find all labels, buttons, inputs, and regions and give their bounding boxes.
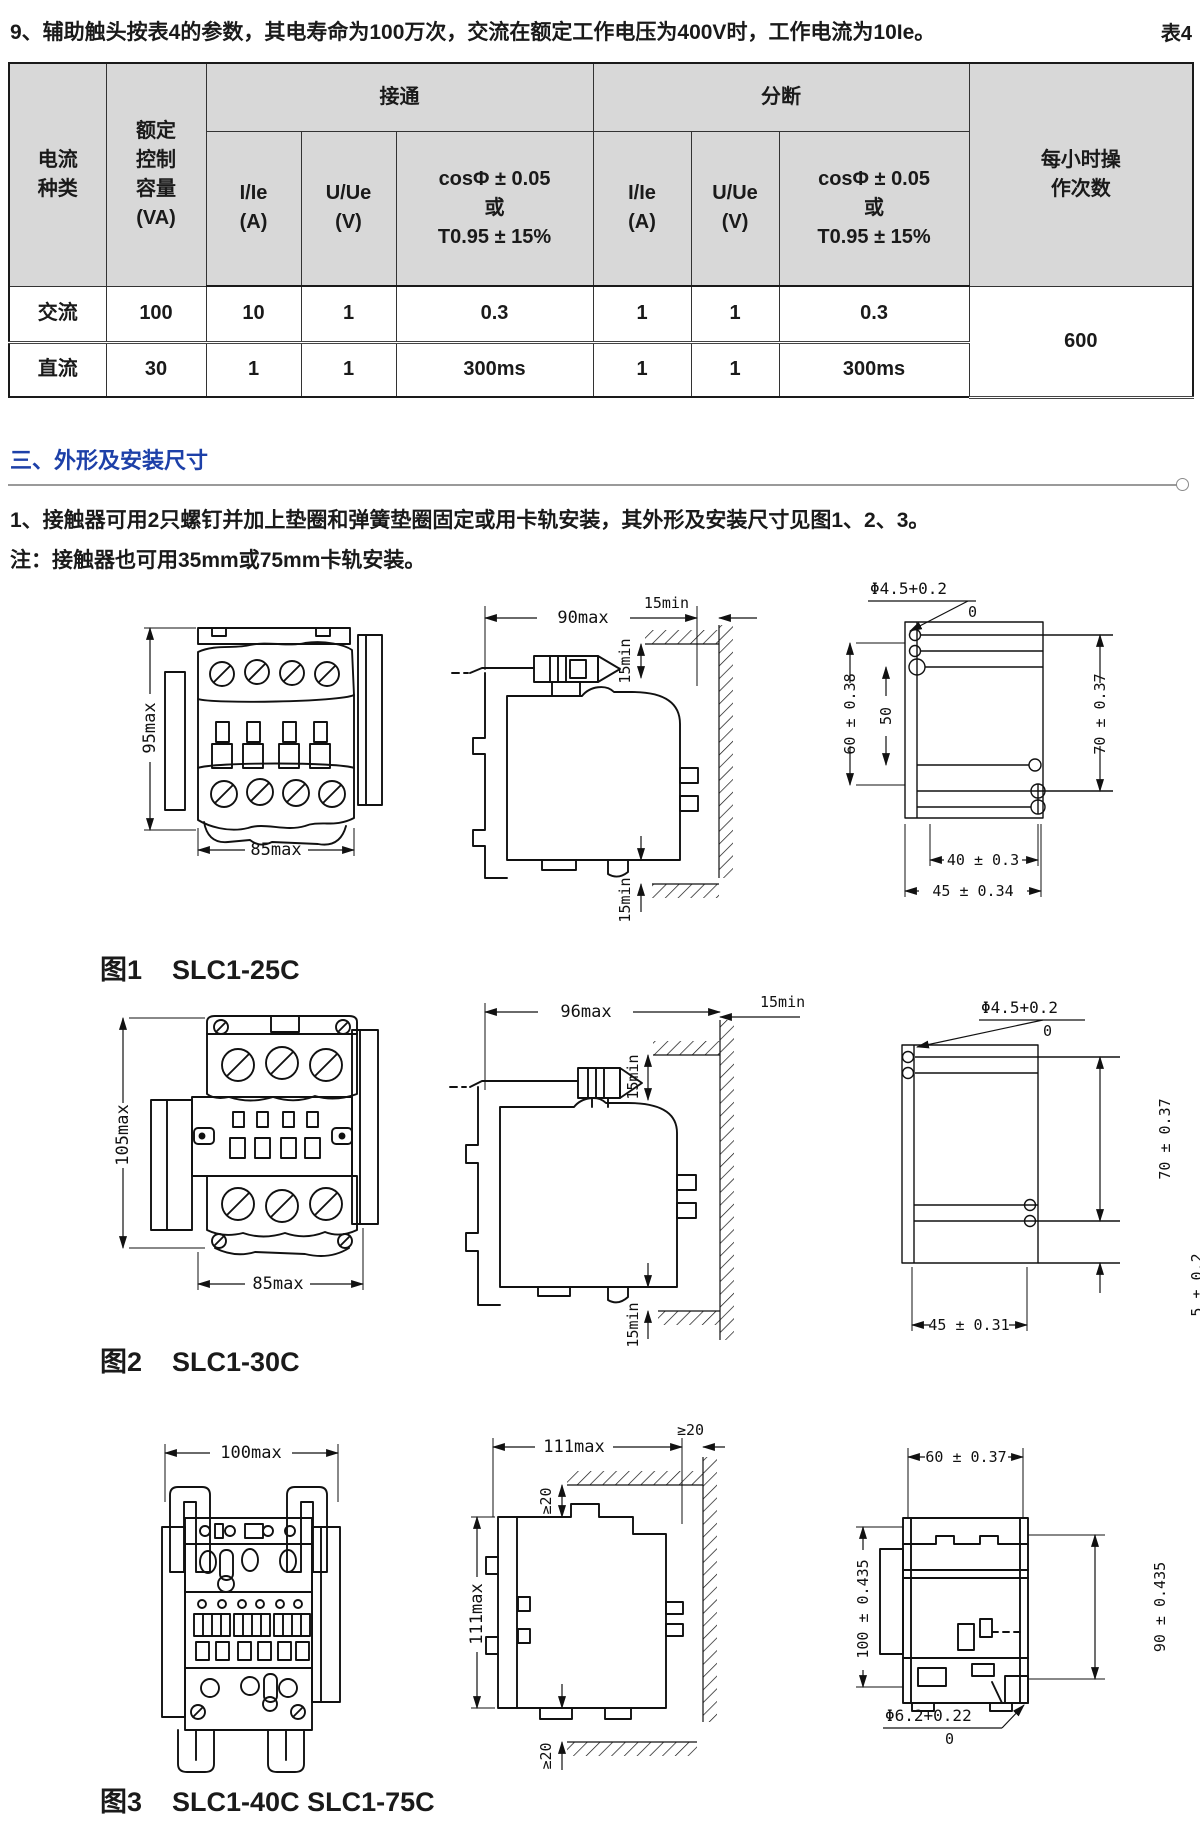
fig1-mount-v1-label: 60 ± 0.38 (841, 673, 859, 754)
group-header-break: 分断 (593, 63, 969, 131)
fig3-top-gap-dim: ≥20 (537, 1485, 562, 1517)
fig2-side-view-drawing: 96max 15min 15min (408, 995, 838, 1365)
fig2-hole-tol-label: 0 (1043, 1022, 1052, 1040)
contactor3-rear-outline (880, 1518, 1028, 1711)
table-row-ac: 交流 100 10 1 0.3 1 1 0.3 600 (9, 286, 1193, 342)
fig1-mount-v2-dim: 50 (877, 667, 895, 765)
cell-ac-close-i: 10 (206, 286, 301, 342)
fig3-front-view-drawing: 100max (130, 1432, 420, 1782)
cell-ac-break-i: 1 (593, 286, 691, 342)
table4-label: 表4 (1161, 17, 1192, 46)
fig2-depth-label: 96max (560, 1002, 611, 1022)
fig3-bottom-gap-label: ≥20 (537, 1742, 555, 1769)
contactor3-side-outline (486, 1504, 683, 1719)
fig1-mount-v1-dim: 60 ± 0.38 (841, 643, 905, 785)
cell-ac-break-u: 1 (691, 286, 779, 342)
fig3-side-height-label: 111max (467, 1583, 487, 1644)
cell-ac-close-u: 1 (301, 286, 396, 342)
fig3-bottom-gap-dim: ≥20 (537, 1684, 562, 1770)
fig3-mounting-view-drawing: 60 ± 0.37 100 ± 0.435 90 ± 0.435 (740, 1432, 1200, 1767)
col-header-close-i: I/Ie (A) (206, 131, 301, 286)
cell-ac-close-cos: 0.3 (396, 286, 593, 342)
fig1-depth-label: 90max (557, 608, 608, 628)
install-notes: 1、接触器可用2只螺钉并加上垫圈和弹簧垫圈固定或用卡轨安装，其外形及安装尺寸见图… (10, 501, 1192, 581)
section-title: 三、外形及安装尺寸 (10, 443, 208, 475)
fig2-mount-v1-label: 70 ± 0.37 (1156, 1098, 1174, 1179)
fig2-mount-v1-dim: 70 ± 0.37 (1100, 1057, 1174, 1221)
fig1-bottom-gap-label: 15min (616, 877, 634, 922)
fig2-front-view-drawing: 105max (95, 1008, 425, 1298)
mounting-plate-2 (902, 1045, 1120, 1263)
fig1-depth-dim: 90max (485, 606, 697, 686)
fig3-hole-label: Φ6.2+0.22 (885, 1706, 972, 1725)
fig1-mid-gap-dim: 15min (616, 638, 641, 683)
fig2-top-gap-label: 15min (760, 995, 805, 1011)
fig3-number: 图3 (100, 1787, 142, 1817)
fig1-number: 图1 (100, 955, 142, 985)
fig3-mount-top-label: 60 ± 0.37 (925, 1448, 1006, 1466)
divider-end-circle (1176, 478, 1189, 491)
fig3-depth-label: 111max (543, 1437, 604, 1457)
fig3-caption: 图3SLC1-40C SLC1-75C (100, 1780, 435, 1819)
cell-dc-capacity: 30 (106, 342, 206, 397)
fig2-floor (658, 1311, 720, 1325)
fig3-mount-right-label: 90 ± 0.435 (1151, 1562, 1169, 1652)
fig1-height-label: 95max (140, 702, 160, 753)
fig1-side-view-drawing: 90max 15min 15min (412, 578, 762, 923)
fig2-caption: 图2SLC1-30C (100, 1340, 300, 1379)
fig1-bottom-gap-dim: 15min (616, 836, 641, 923)
fig3-side-view-drawing: 111max ≥20 ≥20 111max (395, 1412, 730, 1792)
fig1-hole-label: Φ4.5+0.2 (870, 579, 947, 598)
fig1-mount-v2-label: 50 (877, 707, 895, 725)
cell-ac-break-cos: 0.3 (779, 286, 969, 342)
fig2-model: SLC1-30C (172, 1347, 300, 1377)
fig1-front-height-dim: 95max (140, 628, 196, 830)
fig2-number: 图2 (100, 1347, 142, 1377)
col-header-close-cos: cosΦ ± 0.05 或 T0.95 ± 15% (396, 131, 593, 286)
fig1-hole-callout: Φ4.5+0.2 0 (868, 579, 977, 631)
cell-ac-type: 交流 (9, 286, 106, 342)
fig3-side-gap-label: ≥20 (677, 1421, 704, 1439)
cell-dc-break-cos: 300ms (779, 342, 969, 397)
fig2-mount-h1-dim: 45 ± 0.31 (912, 1267, 1027, 1334)
fig1-mid-gap-label: 15min (616, 638, 634, 683)
group-header-close: 接通 (206, 63, 593, 131)
contactor2-side-outline (450, 1068, 696, 1305)
fig3-mount-left-label: 100 ± 0.435 (854, 1559, 872, 1658)
col-header-break-i: I/Ie (A) (593, 131, 691, 286)
install-note-1: 1、接触器可用2只螺钉并加上垫圈和弹簧垫圈固定或用卡轨安装，其外形及安装尺寸见图… (10, 501, 1192, 541)
fig3-width-label: 100max (220, 1443, 281, 1463)
col-header-ops-per-hour: 每小时操 作次数 (969, 63, 1193, 286)
fig2-hole-callout: Φ4.5+0.2 0 (917, 998, 1085, 1047)
document-page: 9、辅助触头按表4的参数，其电寿命为100万次，交流在额定工作电压为400V时，… (0, 0, 1200, 1833)
fig3-wall (567, 1457, 717, 1722)
fig1-model: SLC1-25C (172, 955, 300, 985)
cell-dc-close-cos: 300ms (396, 342, 593, 397)
contactor2-front-outline (151, 1016, 378, 1256)
install-note-2: 注：接触器也可用35mm或75mm卡轨安装。 (10, 541, 1192, 581)
fig3-model: SLC1-40C SLC1-75C (172, 1787, 435, 1817)
cell-dc-break-u: 1 (691, 342, 779, 397)
fig2-height-label: 105max (113, 1104, 133, 1165)
section-divider (8, 484, 1178, 486)
fig3-mount-top-dim: 60 ± 0.37 (908, 1448, 1023, 1518)
col-header-close-u: U/Ue (V) (301, 131, 396, 286)
col-header-capacity: 额定 控制 容量 (VA) (106, 63, 206, 286)
col-header-break-cos: cosΦ ± 0.05 或 T0.95 ± 15% (779, 131, 969, 286)
heading-row: 9、辅助触头按表4的参数，其电寿命为100万次，交流在额定工作电压为400V时，… (10, 16, 1192, 46)
fig2-mount-h1-label: 45 ± 0.31 (928, 1316, 1009, 1334)
aux-contact-parameters-table: 电流 种类 额定 控制 容量 (VA) 接通 分断 每小时操 作次数 I/Ie … (8, 62, 1194, 399)
fig1-wall (645, 625, 733, 878)
fig3-floor (567, 1742, 697, 1756)
col-header-current-type: 电流 种类 (9, 63, 106, 286)
fig2-mounting-view-drawing: Φ4.5+0.2 0 70 ± 0.37 5 ± 0.2 45 ± 0.31 (845, 995, 1200, 1355)
fig1-width-label: 85max (250, 840, 301, 860)
fig3-mount-left-dim: 100 ± 0.435 (854, 1527, 903, 1687)
cell-ops-per-hour: 600 (969, 286, 1193, 397)
mounting-plate-1 (905, 622, 1113, 818)
fig1-mount-v3-label: 70 ± 0.37 (1091, 673, 1109, 754)
fig1-front-view-drawing: 95max 85max (100, 622, 410, 872)
col-header-break-u: U/Ue (V) (691, 131, 779, 286)
fig2-bottom-gap-dim: 15min (624, 1263, 648, 1348)
fig1-mount-h1-label: 40 ± 0.3 (947, 851, 1019, 869)
cell-dc-close-u: 1 (301, 342, 396, 397)
fig1-hole-tol-label: 0 (968, 603, 977, 621)
fig1-mount-h1-dim: 40 ± 0.3 (930, 824, 1038, 869)
heading-text: 9、辅助触头按表4的参数，其电寿命为100万次，交流在额定工作电压为400V时，… (10, 16, 935, 46)
fig1-floor (652, 884, 719, 898)
fig3-top-gap-label: ≥20 (537, 1487, 555, 1514)
cell-dc-break-i: 1 (593, 342, 691, 397)
fig3-hole-tol-label: 0 (945, 1730, 954, 1748)
fig1-top-gap-label: 15min (644, 594, 689, 612)
contactor-side-outline (452, 656, 698, 878)
fig1-mounting-view-drawing: Φ4.5+0.2 0 60 ± 0.38 50 (818, 578, 1158, 908)
fig2-wall (653, 1020, 734, 1340)
fig1-caption: 图1SLC1-25C (100, 948, 300, 987)
contactor-front-outline (165, 628, 382, 845)
fig1-top-gap-dim: 15min (644, 594, 757, 618)
cell-dc-close-i: 1 (206, 342, 301, 397)
fig2-mount-v2-label: 5 ± 0.2 (1188, 1253, 1200, 1316)
cell-dc-type: 直流 (9, 342, 106, 397)
fig2-hole-label: Φ4.5+0.2 (981, 998, 1058, 1017)
fig2-width-label: 85max (252, 1274, 303, 1294)
fig2-bottom-gap-label: 15min (624, 1302, 642, 1347)
fig3-mount-right-dim: 90 ± 0.435 (1028, 1535, 1169, 1679)
fig2-top-gap-dim: 15min (720, 995, 805, 1017)
fig1-mount-h2-label: 45 ± 0.34 (932, 882, 1013, 900)
contactor3-front-outline (162, 1487, 340, 1772)
cell-ac-capacity: 100 (106, 286, 206, 342)
fig1-mount-v3-dim: 70 ± 0.37 (1091, 635, 1109, 791)
fig3-side-height-dim: 111max (467, 1517, 495, 1708)
fig3-side-gap-dim: ≥20 (677, 1421, 725, 1447)
fig3-front-width-dim: 100max (165, 1443, 338, 1502)
